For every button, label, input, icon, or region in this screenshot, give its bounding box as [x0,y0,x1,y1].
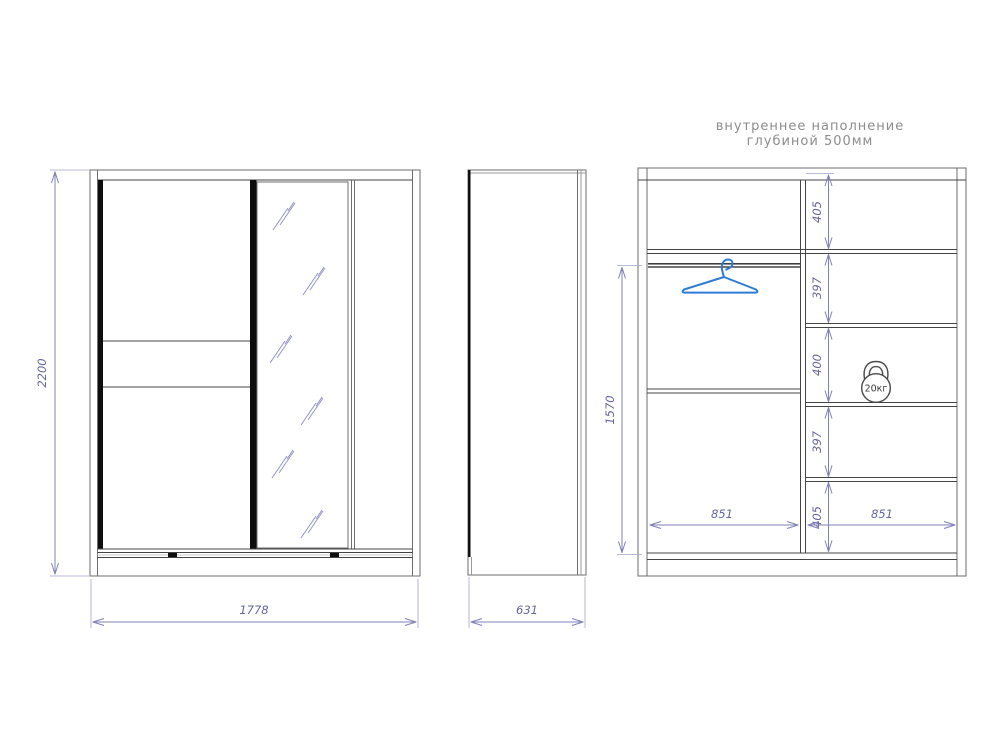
drawing-note: внутреннее наполнение глубиной 500мм [716,119,904,149]
internal-cabinet-outline [638,168,966,576]
dim-front-height: 2200 [35,170,89,576]
dim-front-width: 1778 [91,579,418,628]
dim-rod-height: 1570 [603,266,642,555]
shelf-dim-1: 405 [810,201,824,223]
shelf-dim-4: 397 [810,430,824,453]
internal-view: 20кг [638,168,966,576]
left-door-right-profile [250,180,257,549]
front-width-value: 1778 [239,603,268,617]
note-line-1: внутреннее наполнение [716,119,904,134]
note-line-2: глубиной 500мм [747,134,874,149]
shelf-dim-3: 400 [810,354,824,376]
rod-height-value: 1570 [603,395,617,424]
door-guide-left [168,553,177,557]
side-view [468,170,586,575]
left-section-width-value: 851 [711,507,733,521]
door-guide-right [330,553,339,557]
wardrobe-drawing: 2200 1778 631 [0,0,1000,750]
side-depth-value: 631 [516,603,538,617]
dim-side-depth: 631 [469,577,585,628]
right-section-width-value: 851 [871,507,893,521]
wardrobe-technical-drawing-page: 2200 1778 631 [0,0,1000,750]
front-height-value: 2200 [35,358,49,387]
front-view [90,170,420,576]
kettlebell-20kg-icon: 20кг [862,362,891,403]
side-cabinet-outline [468,170,586,575]
left-door-left-profile [98,180,103,549]
shelf-dim-2: 397 [810,276,824,299]
kettlebell-weight-label: 20кг [865,384,888,395]
mirror-door [257,182,348,548]
